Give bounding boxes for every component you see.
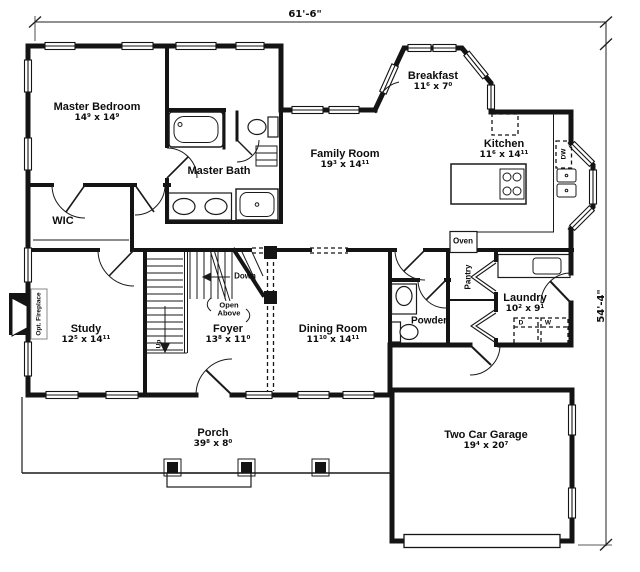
toilet	[248, 117, 278, 137]
bathtub	[169, 112, 223, 147]
doors	[52, 82, 571, 395]
kitchen-counter	[477, 112, 554, 232]
stairs-down-label: Down	[234, 273, 256, 282]
room-label-study: Study 12⁵ x 14¹¹	[62, 323, 111, 345]
room-label-laundry: Laundry 10² x 9¹	[503, 292, 546, 314]
room-label-powder: Powder	[411, 315, 447, 326]
column	[264, 246, 277, 259]
column	[264, 291, 277, 304]
pantry-label: Pantry	[465, 265, 474, 290]
room-label-kitchen: Kitchen 11⁶ x 14¹¹	[480, 138, 529, 160]
floor-plan-drawing	[0, 0, 640, 572]
room-label-dining-room: Dining Room 11¹⁰ x 14¹¹	[299, 323, 367, 345]
kitchen-island	[451, 164, 526, 204]
oven-label: Oven	[453, 238, 473, 247]
shower	[236, 189, 278, 220]
linen-closet	[256, 146, 277, 166]
kitchen-sink	[557, 169, 576, 197]
laundry-counter	[498, 255, 570, 278]
room-label-wic: WIC	[52, 215, 73, 227]
dimension-overall-height: 54'-4"	[591, 289, 609, 322]
dryer-label: D	[519, 319, 524, 326]
room-label-porch: Porch 39⁸ x 8⁰	[194, 427, 233, 449]
powder-sink	[392, 284, 417, 314]
floor-plan: 61'-6" 54'-4" Master Bedroom 14⁹ x 14⁹ M…	[0, 0, 640, 572]
open-above-bracket-left	[207, 298, 211, 311]
room-label-foyer: Foyer 13⁸ x 11⁰	[205, 323, 250, 345]
room-label-family-room: Family Room 19³ x 14¹¹	[310, 148, 379, 170]
dishwasher-label: DW	[560, 149, 567, 160]
washer-label: W	[545, 319, 551, 326]
garage-door	[404, 535, 560, 548]
stairs-up-label: Up	[155, 340, 162, 349]
dimension-overall-width: 61'-6"	[288, 4, 321, 22]
refrigerator	[492, 114, 518, 135]
opt-fireplace-label: Opt. Fireplace	[35, 292, 42, 335]
dryer-outline	[514, 318, 538, 345]
room-label-garage: Two Car Garage 19⁴ x 20⁷	[444, 429, 528, 451]
columns	[264, 246, 277, 304]
open-above-bracket-right	[246, 309, 250, 322]
vanity	[169, 193, 232, 220]
room-label-master-bedroom: Master Bedroom 14⁹ x 14⁹	[54, 101, 141, 123]
room-label-breakfast: Breakfast 11⁶ x 7⁰	[408, 70, 458, 92]
room-label-master-bath: Master Bath	[188, 165, 251, 177]
open-above-label: Open Above	[218, 302, 241, 319]
